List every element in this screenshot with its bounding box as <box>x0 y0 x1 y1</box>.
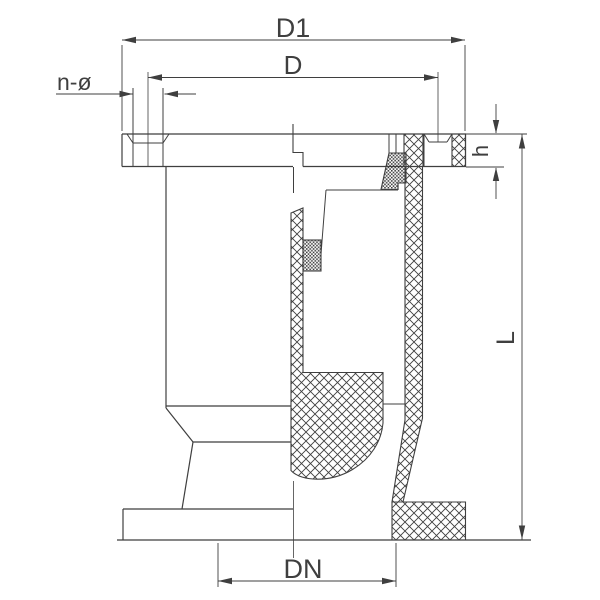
right-base-foot-section <box>392 502 466 540</box>
l-label: L <box>492 331 520 345</box>
n-phi-label: n-ø <box>57 69 92 95</box>
d-arrow-left <box>148 74 162 80</box>
valve-technical-drawing: D1 D n-ø h <box>0 0 600 600</box>
drawing-canvas: D1 D n-ø h <box>0 0 600 600</box>
dn-label: DN <box>284 554 323 584</box>
right-flange-outer-ring-section <box>452 134 466 167</box>
dn-arrow-left <box>218 578 232 584</box>
h-arrow-up <box>493 168 499 182</box>
center-notch <box>293 124 303 167</box>
h-arrow-down <box>493 120 499 134</box>
dn-arrow-right <box>382 578 396 584</box>
d-arrow-right <box>424 74 438 80</box>
d1-arrow-left <box>122 37 136 43</box>
n-phi-arrow-right-pointing <box>120 91 134 97</box>
l-arrow-up <box>519 135 525 149</box>
seat-slot-lines <box>389 134 396 153</box>
d1-arrow-right <box>451 37 465 43</box>
h-label: h <box>468 145 493 157</box>
dimension-h: h <box>466 104 527 199</box>
l-arrow-down <box>519 526 525 540</box>
body-neck-line <box>182 442 193 509</box>
right-flange-ring-section <box>404 134 423 167</box>
n-phi-arrow-left-pointing <box>165 91 179 97</box>
d1-label: D1 <box>276 13 311 43</box>
dimension-d: D <box>148 50 438 81</box>
d-label: D <box>284 50 303 80</box>
body-taper-line <box>166 408 193 442</box>
center-rubber-seal <box>303 240 321 271</box>
dimension-l: L <box>492 134 525 540</box>
guide-stem-line <box>321 190 326 254</box>
upper-rubber-seal <box>381 153 406 190</box>
dimension-dn: DN <box>218 543 396 587</box>
right-body-wall-section <box>392 167 423 503</box>
dimension-n-phi: n-ø <box>56 69 196 97</box>
section-hatched-parts <box>291 134 466 540</box>
